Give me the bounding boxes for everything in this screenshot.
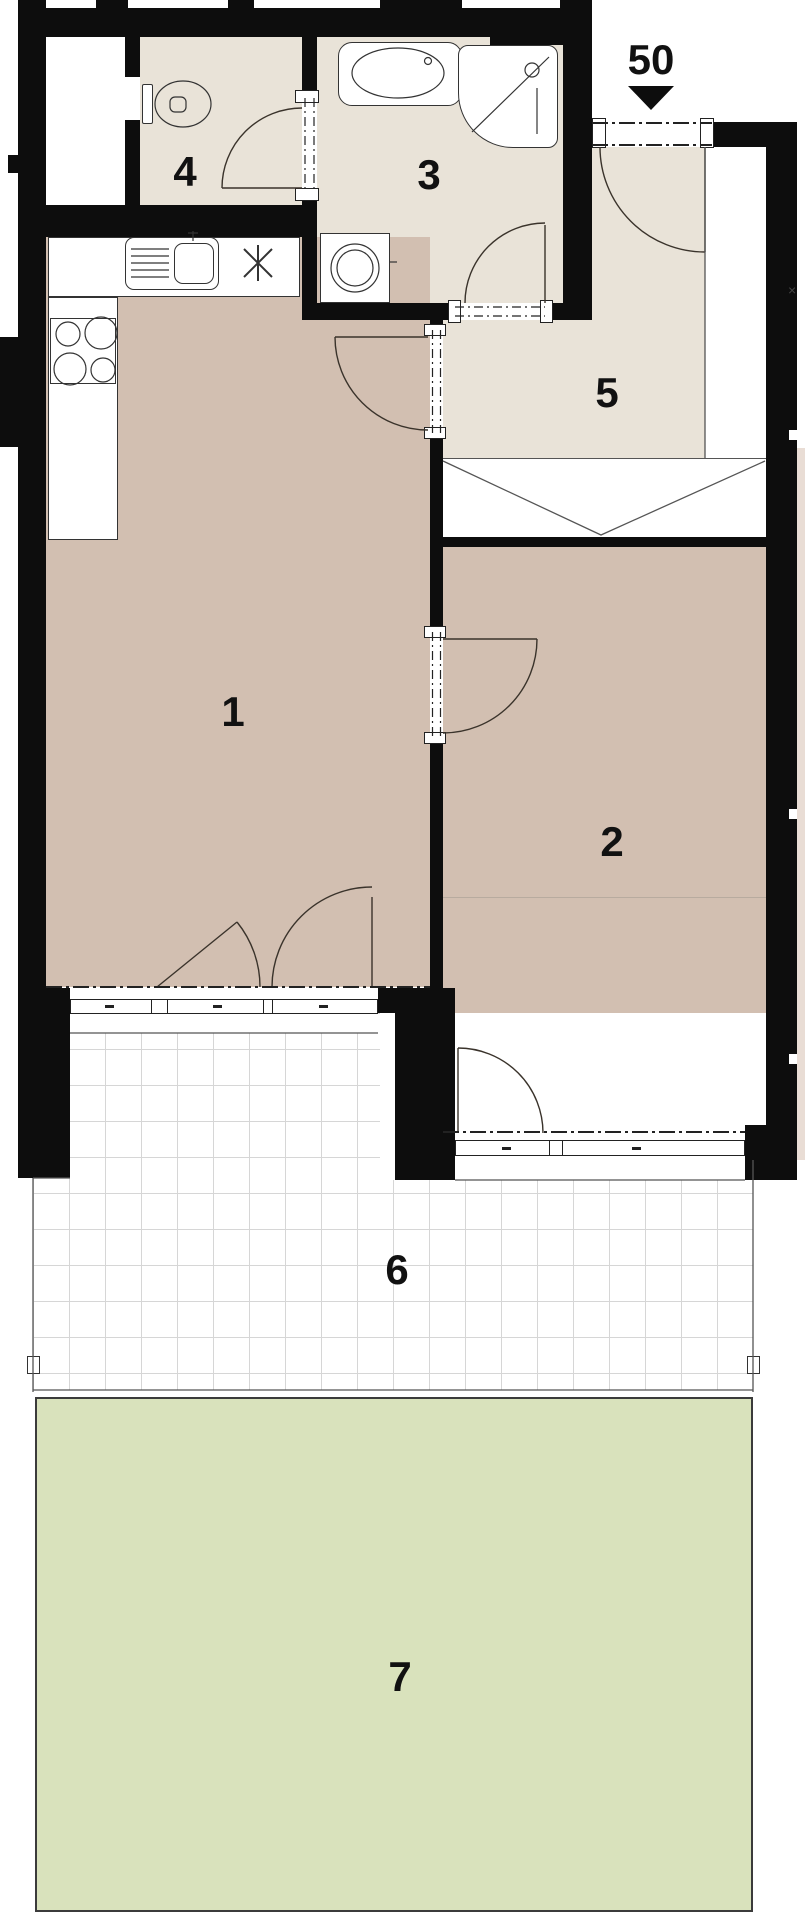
wall-segment — [443, 537, 766, 547]
washing-machine — [320, 233, 390, 303]
door-jamb — [424, 732, 446, 744]
door-jamb — [424, 626, 446, 638]
room-5-floor-upper — [592, 147, 705, 320]
window-tick — [319, 1005, 328, 1008]
wall-segment — [125, 37, 140, 77]
door-jamb — [700, 118, 714, 148]
fence-post — [27, 1356, 40, 1374]
door-jamb — [424, 427, 446, 439]
ceiling-change-line — [443, 897, 766, 898]
room-4-floor — [140, 37, 302, 205]
door-jamb — [295, 90, 319, 103]
entrance-arrow-icon — [628, 86, 674, 110]
wall-segment — [395, 1013, 455, 1180]
wall-segment — [430, 738, 443, 988]
door-jamb — [540, 300, 553, 323]
window-tick — [105, 1005, 114, 1008]
room-label-7: 7 — [388, 1656, 411, 1698]
wall-segment — [302, 193, 317, 303]
door-jamb — [424, 324, 446, 336]
wall-segment — [302, 303, 455, 320]
wall-segment — [18, 988, 70, 1178]
door-opening — [430, 330, 443, 433]
door-jamb — [592, 118, 606, 148]
terrace-doorstep — [70, 1014, 378, 1033]
dimension-mark: × — [788, 282, 796, 298]
wall-segment — [125, 120, 140, 205]
kitchen-sink-basin — [174, 243, 214, 284]
room-label-6: 6 — [385, 1249, 408, 1291]
toilet-tank — [142, 84, 153, 124]
wall-segment — [378, 988, 455, 1013]
wall-segment — [228, 0, 254, 10]
wall-joint-notch — [789, 1054, 797, 1064]
wall-pier — [0, 337, 18, 447]
entrance-number-label: 50 — [628, 36, 675, 84]
window-room2-terrace — [455, 1140, 745, 1156]
cooktop — [50, 318, 116, 384]
wall-segment — [380, 0, 462, 10]
door-opening — [455, 303, 545, 320]
neighbor-floor-sliver — [797, 448, 805, 1160]
window-mullion — [272, 1000, 273, 1013]
window-mullion — [263, 1000, 264, 1013]
wall-joint-notch — [789, 809, 797, 819]
room-label-4: 4 — [173, 151, 196, 193]
window-mullion — [167, 1000, 168, 1013]
room-label-5: 5 — [595, 372, 618, 414]
door-opening — [430, 632, 443, 738]
wall-segment — [745, 1125, 797, 1180]
window-tick — [502, 1147, 511, 1150]
wall-segment — [46, 205, 317, 237]
wall-segment — [712, 122, 797, 147]
room-5-floor-lower — [443, 320, 705, 458]
wall-segment — [18, 0, 46, 988]
window-mullion — [549, 1141, 550, 1155]
wall-joint-notch — [789, 430, 797, 440]
wall-segment — [302, 37, 317, 98]
wall-segment — [96, 0, 128, 10]
wall-segment — [430, 433, 443, 632]
door-opening — [302, 98, 317, 193]
room-label-1: 1 — [221, 691, 244, 733]
fence-post — [747, 1356, 760, 1374]
window-mullion — [562, 1141, 563, 1155]
room-label-2: 2 — [600, 821, 623, 863]
door-jamb — [295, 188, 319, 201]
built-in-wardrobe — [443, 458, 766, 537]
wall-segment — [563, 0, 592, 320]
window-tick — [213, 1005, 222, 1008]
door-jamb — [448, 300, 461, 323]
window-tick — [632, 1147, 641, 1150]
floor-plan: 1 2 3 4 5 6 7 50 × — [0, 0, 805, 1920]
window-room1-terrace — [70, 999, 378, 1014]
room-label-3: 3 — [417, 154, 440, 196]
wall-nub — [8, 155, 18, 173]
window-mullion — [151, 1000, 152, 1013]
bathroom-sink — [338, 42, 462, 106]
terrace-doorstep — [455, 1158, 745, 1180]
